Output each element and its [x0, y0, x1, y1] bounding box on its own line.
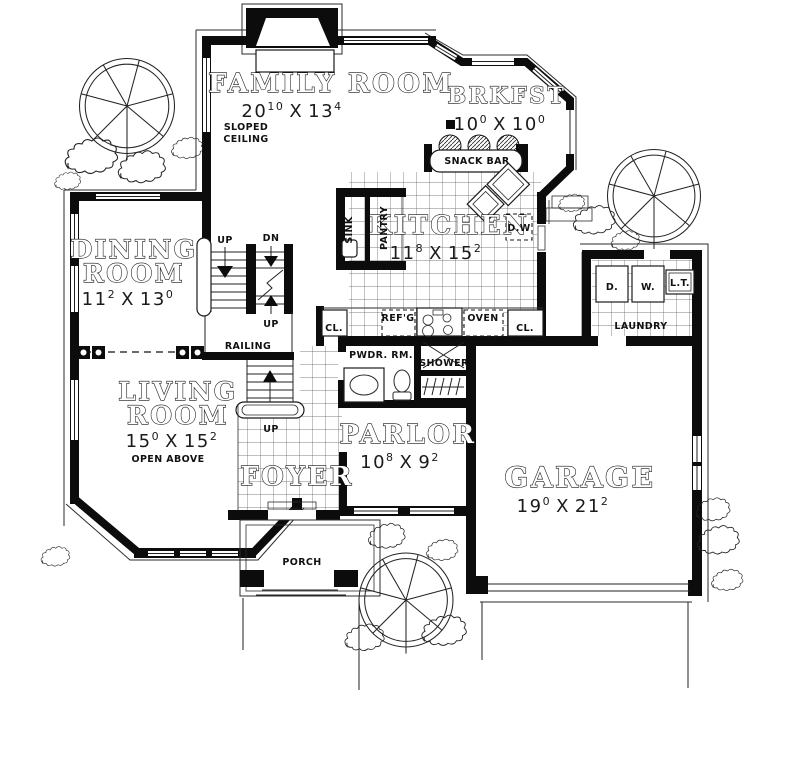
hall-floor-tile — [300, 346, 342, 404]
kitchen-label: KITCHEN — [369, 211, 529, 241]
walkway-driveway — [243, 598, 688, 690]
tree-icon — [359, 553, 453, 654]
bush-icon — [573, 206, 615, 234]
laundry-tub-label: L.T. — [670, 278, 690, 289]
up-main-label: UP — [217, 235, 232, 246]
family-room-label: FAMILY ROOM — [208, 69, 453, 99]
living-room-dims: 150X152 — [126, 430, 219, 452]
garage-label: GARAGE — [505, 461, 656, 494]
parlor-dims: 108X92 — [360, 451, 440, 473]
foyer-label: FOYER — [240, 462, 354, 492]
family-room-dims: 2010X134 — [241, 100, 342, 122]
sloped-ceiling-note-2: CEILING — [223, 134, 268, 145]
up-lower-label: UP — [263, 424, 278, 435]
dryer-label: D. — [606, 282, 618, 293]
tree-icon — [608, 150, 701, 250]
up-mid-label: UP — [263, 319, 278, 330]
bush-icon — [712, 569, 743, 590]
bush-icon — [697, 526, 739, 554]
sloped-ceiling-note-1: SLOPED — [224, 122, 268, 133]
garage-dims: 190X212 — [517, 495, 610, 517]
laundry-label: LAUNDRY — [614, 321, 667, 332]
parlor-label: PARLOR — [340, 420, 477, 450]
pantry-label: PANTRY — [379, 206, 390, 250]
dining-room-label-2: ROOM — [83, 259, 185, 288]
kitchen-dims: 118X152 — [390, 242, 483, 264]
powder-room-label: PWDR. RM. — [349, 350, 413, 361]
stair-stringer — [197, 238, 211, 316]
powder-room-fixtures — [344, 368, 411, 402]
bush-icon — [41, 547, 70, 567]
sink-label: SINK — [344, 216, 355, 244]
bush-icon — [55, 172, 81, 190]
fireplace — [246, 8, 338, 72]
bush-icon — [65, 138, 117, 174]
closet-right-label: CL. — [516, 323, 534, 334]
down-label: DN — [263, 233, 280, 244]
snack-bar-label: SNACK BAR — [444, 156, 510, 167]
porch-label: PORCH — [282, 557, 321, 568]
breakfast-dims: 100X100 — [454, 113, 547, 135]
closet-rod — [422, 378, 464, 395]
bush-icon — [559, 194, 585, 212]
closet-left-label: CL. — [325, 323, 343, 334]
toilet-base — [393, 392, 411, 400]
shower-label: SHOWER — [419, 358, 469, 369]
foyer-floor-tile — [238, 404, 342, 514]
refrigerator-label: REF'G — [381, 313, 414, 324]
column-row — [77, 346, 204, 359]
washer-label: W. — [641, 282, 655, 293]
bush-icon — [172, 137, 203, 158]
railing-wall — [202, 352, 294, 360]
breakfast-label: BRKFST — [448, 83, 567, 109]
garage-door — [488, 584, 690, 591]
railing-label: RAILING — [225, 341, 271, 352]
oven-label: OVEN — [467, 313, 498, 324]
bush-icon — [118, 151, 165, 183]
laundry-garage-door — [598, 336, 626, 346]
fixtures — [77, 8, 694, 690]
floor-plan: FAMILY ROOM 2010X134 SLOPED CEILING BRKF… — [0, 0, 800, 757]
bush-icon — [611, 231, 640, 251]
floor-plan-drawing: FAMILY ROOM 2010X134 SLOPED CEILING BRKF… — [0, 0, 800, 757]
tree-icon — [80, 58, 175, 160]
living-room-label-2: ROOM — [127, 401, 229, 430]
open-above-note: OPEN ABOVE — [131, 454, 204, 465]
dining-room-dims: 112X130 — [82, 288, 175, 310]
newel-rail — [236, 402, 304, 418]
toilet-bowl — [394, 370, 410, 392]
laundry-back-door — [644, 250, 670, 259]
dishwasher-label: D.W — [507, 223, 530, 234]
bush-icon — [427, 539, 458, 560]
